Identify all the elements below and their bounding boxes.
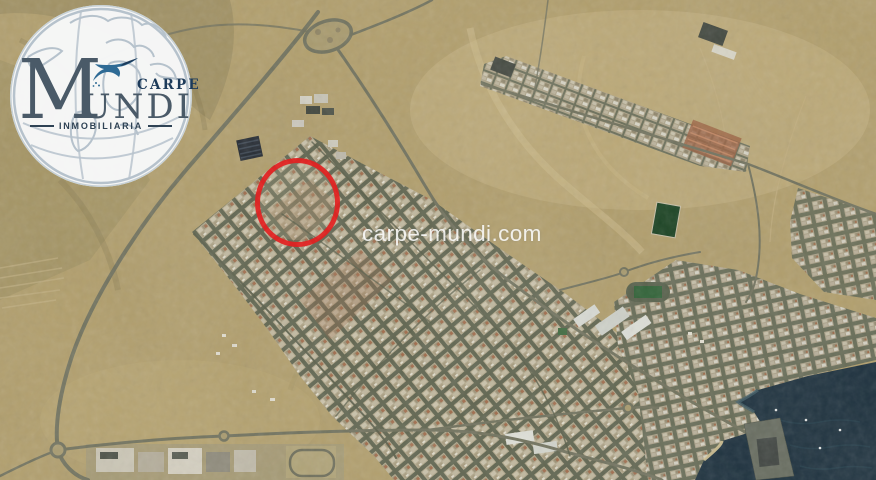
logo-mundi-rest: UNDI bbox=[82, 90, 193, 124]
logo-carpe-text: CARPE bbox=[137, 77, 201, 93]
tagline-text: INMOBILIARIA bbox=[59, 121, 143, 131]
tagline-line-left bbox=[30, 125, 54, 127]
location-marker-circle bbox=[255, 158, 340, 247]
property-aerial-listing-image: carpe-mundi.com bbox=[0, 0, 876, 480]
tagline-line-right bbox=[148, 125, 172, 127]
logo-tagline: INMOBILIARIA bbox=[16, 121, 186, 131]
agency-logo: M UNDI CARPE INMOBILIARIA bbox=[10, 5, 192, 187]
website-watermark: carpe-mundi.com bbox=[362, 221, 542, 247]
